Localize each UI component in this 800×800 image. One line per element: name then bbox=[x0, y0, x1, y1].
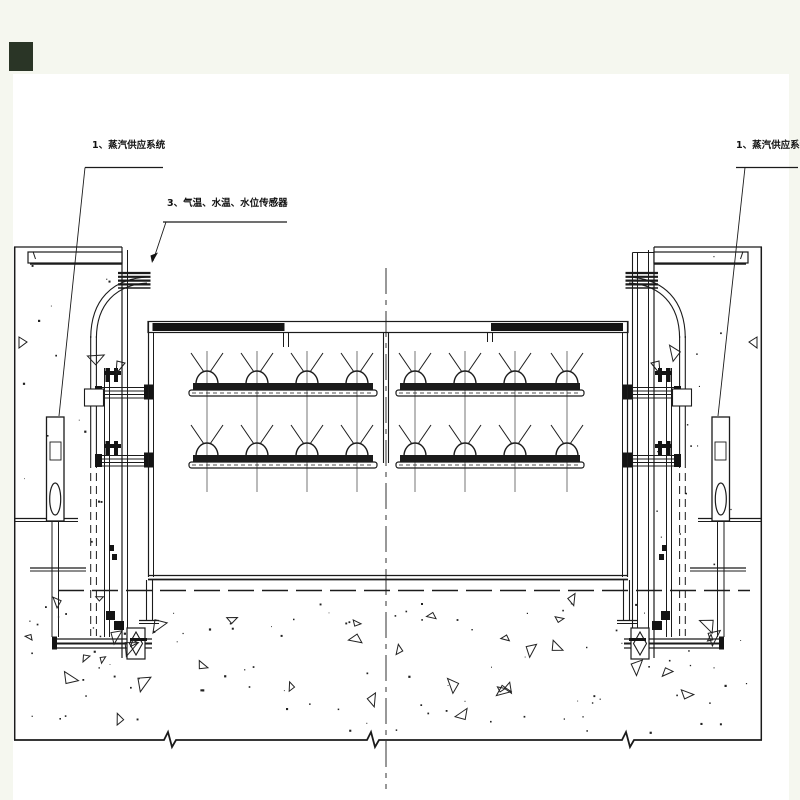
drawing-canvas: 1、蒸汽供应系统 3、气温、水温、水位传感器 1、蒸汽供应系统 bbox=[0, 0, 800, 800]
left-pier bbox=[14, 247, 159, 740]
speckle-dot bbox=[696, 353, 698, 355]
speckle-triangle bbox=[87, 355, 104, 365]
bottom-steam-pipe bbox=[624, 545, 724, 659]
spray-line bbox=[241, 425, 254, 444]
speckle-dot bbox=[284, 690, 285, 691]
speckle-dot bbox=[717, 600, 718, 601]
spray-line bbox=[399, 353, 412, 372]
sensor-bracket bbox=[626, 273, 659, 288]
speckle-dot bbox=[680, 533, 681, 534]
speckle-dot bbox=[406, 611, 408, 613]
speckle-dot bbox=[448, 685, 449, 686]
wall-flag-marker bbox=[749, 337, 757, 348]
speckle-dot bbox=[349, 621, 351, 623]
drawing-line bbox=[106, 611, 115, 620]
spray-line bbox=[570, 353, 583, 372]
leader-right-steam bbox=[718, 168, 745, 417]
speckle-dot bbox=[593, 695, 595, 697]
steam-pipe bbox=[193, 383, 373, 390]
speckle-dot bbox=[329, 613, 330, 614]
speckle-dot bbox=[94, 651, 96, 653]
steam-pipe bbox=[400, 383, 580, 390]
speckle-dot bbox=[51, 306, 52, 307]
drawing-line bbox=[47, 417, 65, 521]
spray-line bbox=[570, 425, 583, 444]
drawing-line bbox=[491, 323, 623, 331]
speckle-dot bbox=[713, 256, 714, 257]
drawing-line bbox=[667, 368, 671, 382]
speckle-triangle bbox=[53, 597, 61, 608]
speckle-triangle bbox=[25, 634, 32, 640]
speckle-dot bbox=[697, 445, 698, 446]
speckle-dot bbox=[427, 713, 429, 715]
speckle-dot bbox=[320, 604, 322, 606]
speckle-dot bbox=[183, 633, 184, 634]
speckle-dot bbox=[38, 320, 40, 322]
speckle-dot bbox=[592, 702, 593, 703]
speckle-triangle bbox=[396, 644, 403, 654]
speckle-dot bbox=[232, 628, 234, 630]
speckle-dot bbox=[100, 636, 102, 638]
speckle-dot bbox=[408, 676, 410, 678]
speckle-triangle bbox=[681, 690, 694, 699]
speckle-dot bbox=[524, 716, 526, 718]
annotation-steam-left: 1、蒸汽供应系统 bbox=[92, 139, 165, 152]
spray-line bbox=[310, 353, 323, 372]
drawing-line bbox=[85, 389, 104, 406]
spray-line bbox=[551, 353, 564, 372]
drawing-line bbox=[667, 441, 671, 455]
speckle-dot bbox=[109, 281, 111, 283]
speckle-dot bbox=[600, 699, 601, 700]
spray-line bbox=[291, 353, 304, 372]
speckle-dot bbox=[286, 708, 288, 710]
speckle-dot bbox=[616, 630, 618, 632]
speckle-dot bbox=[367, 673, 369, 675]
speckle-dot bbox=[31, 653, 33, 655]
steam-supply-unit bbox=[712, 417, 730, 637]
speckle-dot bbox=[79, 420, 80, 421]
speckle-dot bbox=[98, 501, 100, 503]
speckle-dot bbox=[562, 610, 564, 612]
spray-line bbox=[360, 425, 373, 444]
speckle-dot bbox=[366, 723, 367, 724]
speckle-dot bbox=[224, 675, 226, 677]
speckle-triangle bbox=[199, 661, 208, 669]
speckle-dot bbox=[491, 667, 492, 668]
speckle-triangle bbox=[138, 677, 151, 692]
drawing-line bbox=[661, 611, 670, 620]
speckle-dot bbox=[173, 613, 174, 614]
speckle-triangle bbox=[227, 618, 238, 624]
drawing-line bbox=[652, 621, 662, 630]
speckle-dot bbox=[24, 478, 25, 479]
speckle-dot bbox=[471, 629, 472, 630]
sensor-bracket bbox=[118, 273, 151, 288]
drawing-line bbox=[674, 454, 681, 467]
speckle-dot bbox=[687, 424, 688, 425]
speckle-triangle bbox=[111, 631, 122, 644]
pier-cap-beam bbox=[654, 252, 748, 263]
speckle-dot bbox=[690, 445, 692, 447]
speckle-triangle bbox=[552, 640, 563, 650]
speckle-dot bbox=[395, 615, 397, 617]
spray-line bbox=[468, 353, 481, 372]
spray-line bbox=[341, 425, 354, 444]
wall-flag-marker bbox=[19, 337, 27, 348]
speckle-dot bbox=[685, 493, 687, 495]
speckle-triangle bbox=[427, 612, 437, 618]
speckle-dot bbox=[271, 626, 272, 627]
spray-line bbox=[499, 425, 512, 444]
spray-line bbox=[210, 353, 223, 372]
speckle-dot bbox=[669, 660, 671, 662]
speckle-dot bbox=[396, 729, 398, 731]
spray-line bbox=[499, 353, 512, 372]
speckle-dot bbox=[644, 613, 645, 614]
speckle-dot bbox=[281, 635, 283, 637]
speckle-dot bbox=[676, 695, 678, 697]
spray-line bbox=[241, 353, 254, 372]
speckle-dot bbox=[725, 685, 727, 687]
speckle-dot bbox=[699, 386, 700, 387]
speckle-triangle bbox=[662, 668, 673, 676]
speckle-dot bbox=[421, 603, 423, 605]
speckle-dot bbox=[720, 723, 722, 725]
heating-pipes bbox=[189, 351, 584, 492]
spray-line bbox=[518, 425, 531, 444]
speckle-dot bbox=[586, 647, 587, 648]
steam-pipe bbox=[400, 455, 580, 462]
drawing-line bbox=[114, 621, 124, 630]
speckle-dot bbox=[465, 701, 466, 702]
spray-line bbox=[191, 425, 204, 444]
speckle-triangle bbox=[289, 682, 294, 691]
speckle-dot bbox=[124, 633, 126, 635]
spray-line bbox=[418, 353, 431, 372]
speckle-dot bbox=[58, 616, 59, 617]
speckle-dot bbox=[490, 721, 492, 723]
speckle-dot bbox=[37, 624, 39, 626]
speckle-dot bbox=[338, 709, 340, 711]
speckle-dot bbox=[32, 716, 33, 717]
speckle-dot bbox=[714, 667, 715, 668]
speckle-dot bbox=[55, 355, 57, 357]
conduit-curve bbox=[91, 277, 147, 338]
speckle-dot bbox=[32, 265, 34, 267]
drawing-line bbox=[106, 441, 110, 455]
speckle-dot bbox=[527, 613, 528, 614]
spray-line bbox=[399, 425, 412, 444]
drawing-line bbox=[629, 638, 646, 641]
drawing-line bbox=[712, 417, 730, 521]
steam-pipe bbox=[193, 455, 373, 462]
speckle-dot bbox=[82, 679, 84, 681]
speckle-dot bbox=[65, 613, 67, 615]
speckle-triangle bbox=[153, 620, 167, 633]
speckle-dot bbox=[253, 666, 255, 668]
speckle-dot bbox=[29, 621, 30, 622]
speckle-dot bbox=[688, 650, 690, 652]
speckle-dot bbox=[457, 619, 459, 621]
spray-line bbox=[191, 353, 204, 372]
speckle-dot bbox=[309, 703, 311, 705]
right-pier bbox=[617, 247, 762, 740]
speckle-dot bbox=[657, 451, 658, 452]
datum-lines bbox=[58, 268, 750, 789]
speckle-triangle bbox=[447, 678, 458, 693]
speckle-triangle bbox=[455, 708, 467, 719]
speckle-dot bbox=[99, 667, 100, 668]
speckle-triangle bbox=[96, 597, 104, 601]
speckle-dot bbox=[209, 628, 211, 630]
pipe-fitting-lower bbox=[95, 441, 154, 468]
speckle-triangle bbox=[670, 345, 681, 361]
spray-line bbox=[449, 425, 462, 444]
speckle-dot bbox=[621, 643, 622, 644]
speckle-dot bbox=[101, 501, 103, 503]
speckle-triangle bbox=[501, 635, 510, 641]
spray-line bbox=[360, 353, 373, 372]
speckle-triangle bbox=[117, 713, 124, 725]
speckle-dot bbox=[85, 695, 87, 697]
speckle-dot bbox=[690, 665, 691, 666]
speckle-dot bbox=[421, 619, 423, 621]
speckle-dot bbox=[59, 718, 61, 720]
spray-line bbox=[551, 425, 564, 444]
speckle-triangle bbox=[555, 617, 564, 623]
spray-line bbox=[341, 353, 354, 372]
spray-line bbox=[260, 425, 273, 444]
spray-line bbox=[260, 353, 273, 372]
speckle-dot bbox=[635, 604, 637, 606]
speckle-dot bbox=[709, 702, 711, 704]
spray-line bbox=[210, 425, 223, 444]
speckle-dot bbox=[714, 564, 716, 566]
spray-line bbox=[418, 425, 431, 444]
speckle-dot bbox=[586, 730, 588, 732]
speckle-triangle bbox=[526, 644, 536, 657]
speckle-dot bbox=[730, 509, 731, 510]
speckle-dot bbox=[525, 657, 526, 658]
speckle-dot bbox=[746, 683, 747, 684]
technical-drawing-svg bbox=[0, 0, 800, 800]
speckle-triangle bbox=[367, 693, 375, 707]
drawing-line bbox=[673, 389, 692, 406]
speckle-dot bbox=[202, 689, 204, 691]
pipe-fitting-upper bbox=[85, 368, 155, 406]
speckle-triangle bbox=[64, 672, 78, 684]
speckle-dot bbox=[349, 730, 351, 732]
speckle-dot bbox=[656, 511, 657, 512]
spray-line bbox=[468, 425, 481, 444]
annotation-sensor: 3、气温、水温、水位传感器 bbox=[167, 197, 288, 210]
drawing-line bbox=[52, 637, 57, 650]
speckle-triangle bbox=[348, 634, 362, 643]
speckle-dot bbox=[106, 279, 107, 280]
drawing-line bbox=[114, 441, 118, 455]
speckle-triangle bbox=[83, 655, 90, 662]
spray-line bbox=[291, 425, 304, 444]
speckle-triangle bbox=[100, 657, 105, 664]
speckle-dot bbox=[244, 669, 245, 670]
speckle-triangle bbox=[699, 620, 713, 633]
pipe-fitting-lower bbox=[622, 441, 681, 468]
foundation bbox=[14, 732, 762, 747]
drawing-line bbox=[106, 368, 110, 382]
drawing-line bbox=[109, 545, 114, 551]
drawing-line bbox=[153, 323, 285, 331]
speckle-dot bbox=[700, 723, 702, 725]
speckle-dot bbox=[93, 627, 94, 628]
speckle-dot bbox=[446, 710, 448, 712]
drawing-line bbox=[662, 545, 667, 551]
speckle-dot bbox=[345, 623, 347, 625]
leader-left-steam bbox=[59, 168, 85, 417]
speckle-dot bbox=[648, 666, 650, 668]
speckle-dot bbox=[249, 686, 251, 688]
speckle-dot bbox=[564, 718, 565, 719]
speckle-triangle bbox=[353, 620, 361, 626]
speckle-dot bbox=[65, 715, 67, 717]
foundation-bottom-line bbox=[14, 732, 762, 747]
leader-arrowhead bbox=[151, 253, 159, 264]
drawing-line bbox=[658, 441, 662, 455]
speckle-dot bbox=[45, 606, 47, 608]
speckle-dot bbox=[582, 716, 583, 717]
speckle-dot bbox=[91, 541, 93, 543]
speckle-dot bbox=[137, 719, 139, 721]
speckle-dot bbox=[23, 383, 25, 385]
speckle-dot bbox=[650, 732, 652, 734]
speckle-triangle bbox=[631, 660, 642, 675]
speckle-dot bbox=[661, 537, 662, 538]
drawing-line bbox=[95, 454, 102, 467]
speckle-dot bbox=[420, 704, 422, 706]
spray-line bbox=[310, 425, 323, 444]
drawing-line bbox=[659, 554, 664, 560]
speckle-dot bbox=[740, 640, 741, 641]
speckle-dot bbox=[577, 701, 578, 702]
speckle-dot bbox=[177, 641, 178, 642]
speckle-dot bbox=[130, 687, 132, 689]
drawing-line bbox=[112, 554, 117, 560]
speckle-dot bbox=[84, 431, 86, 433]
spray-line bbox=[518, 353, 531, 372]
drawing-line bbox=[719, 637, 724, 650]
speckle-dot bbox=[47, 435, 49, 437]
speckle-dot bbox=[720, 332, 722, 334]
annotation-steam-right: 1、蒸汽供应系统 bbox=[736, 139, 800, 152]
spray-line bbox=[449, 353, 462, 372]
speckle-dot bbox=[114, 676, 116, 678]
speckle-dot bbox=[293, 619, 295, 621]
speckle-dot bbox=[110, 664, 111, 665]
